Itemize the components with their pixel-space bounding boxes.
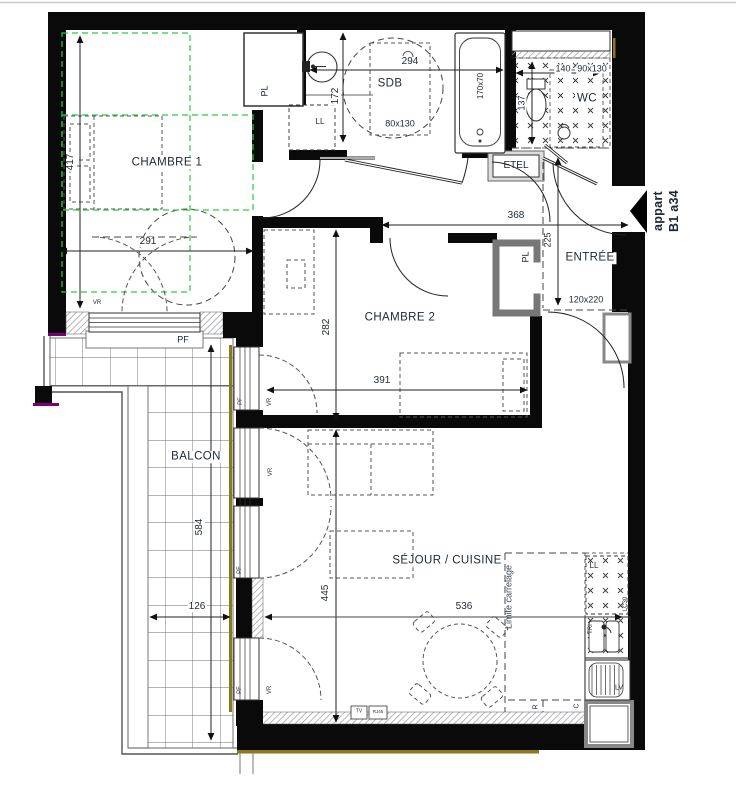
dim-chambre1-width: 291 <box>139 237 158 247</box>
room-label-sejour: SÉJOUR / CUISINE <box>390 555 503 567</box>
shutter-label-chambre1: VR <box>93 300 101 306</box>
tri-label: TRI <box>588 624 594 634</box>
dim-chambre2-height: 282 <box>322 318 332 337</box>
sofa <box>308 430 433 495</box>
dim-chambre2-width: 391 <box>373 376 392 386</box>
dim-sdb-shower: 80x130 <box>384 120 416 129</box>
dim-wc-shower: 90x130 <box>576 65 608 74</box>
lc30-label: LC30 <box>623 597 629 611</box>
wc-duct-cabinet <box>512 31 610 51</box>
wall-top <box>48 12 645 30</box>
wall-right-upper <box>612 30 645 186</box>
dim-bathtub: 170x70 <box>477 72 485 100</box>
apartment-label-line2: B1 a34 <box>668 190 681 232</box>
floor-plan-drawing <box>0 0 736 800</box>
etel-label: ETEL <box>503 161 528 171</box>
closet-chambre1 <box>244 33 303 106</box>
closet-label-entree: PL <box>522 251 531 262</box>
closet-label-chambre1: PL <box>261 85 270 96</box>
turning-circle-chambre1 <box>139 209 235 305</box>
wardrobe-chambre2 <box>264 230 314 314</box>
washer-zone-sdb <box>289 105 335 150</box>
floor-plan: CHAMBRE 1 SDB WC ENTRÉE CHAMBRE 2 BALCON… <box>0 0 736 800</box>
r-label: R <box>533 704 540 709</box>
dim-sdb-height: 172 <box>331 87 341 106</box>
room-label-chambre1: CHAMBRE 1 <box>130 157 205 169</box>
window-label-sejour-1: PF <box>237 566 243 574</box>
dishwasher-label: LV <box>615 685 623 692</box>
dining-table <box>408 611 509 709</box>
wall-bottom-insulation <box>252 712 628 724</box>
apartment-label-line1: appart <box>652 191 665 231</box>
balcony <box>44 336 253 774</box>
room-label-chambre2: CHAMBRE 2 <box>363 312 438 324</box>
window-label-chambre2: PF <box>238 397 244 405</box>
dishwasher-icon <box>585 660 630 700</box>
door-arc-chambre1 <box>262 160 320 218</box>
window-label-sejour-2: PF <box>237 686 243 694</box>
dim-wc-height: 137 <box>518 94 527 111</box>
dim-sejour-height: 445 <box>321 584 331 603</box>
room-label-wc: WC <box>575 93 599 105</box>
dim-sdb-width: 294 <box>401 57 420 67</box>
tile-limit-label: Limite carrelage <box>505 565 514 629</box>
room-label-sdb: SDB <box>376 78 405 90</box>
dim-chambre1-height: 417 <box>66 153 76 172</box>
washer-label-kitchen: LL <box>590 562 599 570</box>
toilet-icon <box>526 79 546 121</box>
dim-entree-height: 225 <box>544 231 553 248</box>
room-label-entree: ENTRÉE <box>563 252 616 264</box>
door-arc-chambre2 <box>390 238 448 296</box>
shutter-label-sejour-2: VR <box>267 686 273 694</box>
shutter-label-chambre2: VR <box>267 398 273 406</box>
room-label-balcon: BALCON <box>169 451 223 463</box>
tv-label: TV <box>356 710 362 715</box>
wall-right-mid <box>612 232 645 312</box>
dim-balcon-width: 126 <box>188 602 207 612</box>
c-label: C <box>574 703 581 708</box>
window-label-chambre1: PF <box>177 336 189 345</box>
wall-left <box>48 12 66 336</box>
dim-balcon-height: 584 <box>195 518 205 537</box>
bed-chambre2 <box>400 353 527 417</box>
shutter-label-sejour-1: VR <box>268 468 274 476</box>
entry-arrow-icon <box>630 190 647 233</box>
dim-entree-passage: 120x220 <box>568 296 605 305</box>
wall-bottom <box>237 724 645 750</box>
dim-entree-width: 368 <box>507 211 526 221</box>
dim-sejour-width: 536 <box>455 602 474 612</box>
closet-entree <box>493 240 540 316</box>
washer-label-sdb: LL <box>316 118 325 126</box>
dim-wc-width: 140 <box>554 65 571 74</box>
balcony-tiles-lower <box>148 386 233 748</box>
rj45-label: RJ45 <box>373 710 384 715</box>
